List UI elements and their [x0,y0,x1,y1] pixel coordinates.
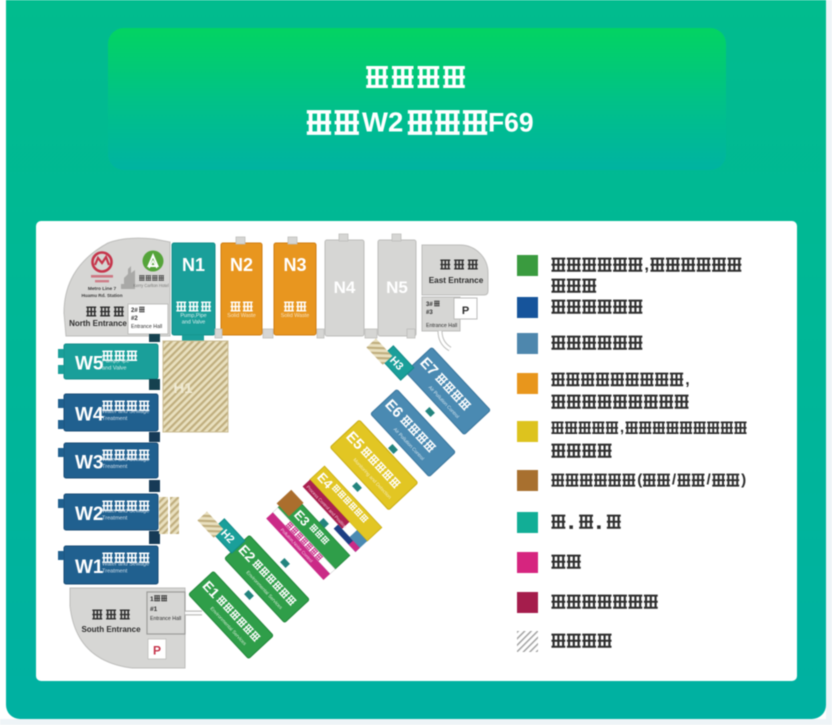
svg-text:W1: W1 [75,557,104,578]
svg-text:Huamu Rd. Station: Huamu Rd. Station [81,293,122,298]
svg-text:Water and Sewage: Water and Sewage [102,509,149,515]
svg-text:N4: N4 [334,278,356,297]
svg-text:#3: #3 [426,310,433,316]
svg-text:,: , [620,420,624,436]
svg-text:H1: H1 [173,380,192,397]
svg-text:Treatment: Treatment [102,416,128,422]
svg-text:Entrance Hall: Entrance Hall [426,323,457,329]
svg-text:N3: N3 [283,255,306,275]
svg-text:Water and Sewage: Water and Sewage [102,562,149,568]
svg-text:Pump,Pipe: Pump,Pipe [102,359,129,365]
svg-text:Solid Waste: Solid Waste [227,313,256,319]
svg-text:2#: 2# [131,308,138,314]
svg-text:#1: #1 [150,606,158,613]
svg-text:W5: W5 [75,354,104,375]
svg-text:W3: W3 [75,453,104,474]
svg-text:1: 1 [150,596,154,603]
svg-text:Entrance Hall: Entrance Hall [150,616,181,622]
svg-text:W2: W2 [75,504,104,525]
svg-text:Treatment: Treatment [102,569,128,575]
svg-text:and Valve: and Valve [182,320,206,326]
svg-text:and Valve: and Valve [102,366,126,372]
svg-text:North Entrance: North Entrance [69,319,127,328]
svg-text:East Entrance: East Entrance [429,276,484,285]
svg-text:Metro Line 7: Metro Line 7 [88,286,117,292]
svg-text:Treatment: Treatment [102,516,128,522]
svg-text:W2: W2 [362,107,403,138]
svg-text:W4: W4 [75,405,104,426]
svg-text:F69: F69 [488,108,534,138]
svg-text:N2: N2 [230,255,253,275]
svg-text:): ) [741,472,746,489]
svg-text:Entrance Hall: Entrance Hall [131,324,162,330]
svg-text:,: , [685,371,689,388]
svg-text:N1: N1 [182,255,205,275]
svg-text:Solid Waste: Solid Waste [281,313,310,319]
svg-text:Kerry Carlton Hotel: Kerry Carlton Hotel [133,283,169,288]
svg-text:Water and Sewage: Water and Sewage [102,457,149,463]
svg-text:#2: #2 [131,316,138,322]
svg-text:South Entrance: South Entrance [81,625,141,634]
svg-text:Treatment: Treatment [102,464,128,470]
svg-text:P: P [153,644,161,658]
svg-text:Water and Sewage: Water and Sewage [102,409,149,415]
svg-text:,: , [644,256,649,274]
svg-text:3#: 3# [426,302,433,308]
svg-text:P: P [462,305,469,317]
svg-text:N5: N5 [386,278,408,297]
svg-text:Pump,Pipe: Pump,Pipe [180,313,206,319]
